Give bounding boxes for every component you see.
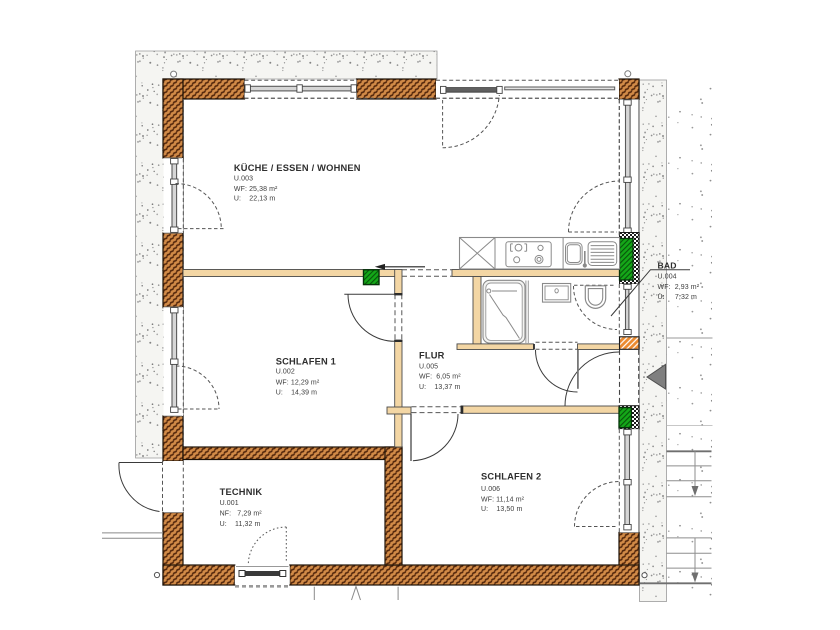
svg-text:SCHLAFEN 1: SCHLAFEN 1 (276, 356, 336, 366)
svg-text:U: 7,32 m: U: 7,32 m (658, 294, 697, 301)
svg-text:KÜCHE / ESSEN / WOHNEN: KÜCHE / ESSEN / WOHNEN (234, 163, 361, 173)
svg-text:U.001: U.001 (220, 500, 239, 507)
svg-text:U: 14,39 m: U: 14,39 m (276, 389, 317, 396)
svg-text:U: 22,13 m: U: 22,13 m (234, 196, 275, 203)
svg-text:WF: 11,14 m²: WF: 11,14 m² (481, 496, 525, 503)
svg-text:WF: 12,29 m²: WF: 12,29 m² (276, 379, 320, 386)
svg-text:U.005: U.005 (419, 363, 438, 370)
svg-text:U: 13,50 m: U: 13,50 m (481, 506, 522, 513)
svg-text:FLUR: FLUR (419, 350, 445, 360)
svg-text:BAD: BAD (658, 260, 677, 270)
svg-text:SCHLAFEN 2: SCHLAFEN 2 (481, 472, 541, 482)
svg-text:U: 11,32 m: U: 11,32 m (220, 521, 261, 528)
svg-text:U.004: U.004 (658, 273, 677, 280)
svg-text:WF: 6,05 m²: WF: 6,05 m² (419, 374, 461, 381)
svg-text:U.003: U.003 (234, 175, 253, 182)
svg-text:TECHNIK: TECHNIK (220, 487, 263, 497)
svg-text:WF: 2,93 m²: WF: 2,93 m² (658, 284, 700, 291)
svg-text:U.006: U.006 (481, 486, 500, 493)
svg-text:U.002: U.002 (276, 369, 295, 376)
svg-text:U: 13,37 m: U: 13,37 m (419, 384, 460, 391)
svg-text:WF: 25,38 m²: WF: 25,38 m² (234, 186, 278, 193)
svg-text:NF: 7,29 m²: NF: 7,29 m² (220, 510, 263, 517)
